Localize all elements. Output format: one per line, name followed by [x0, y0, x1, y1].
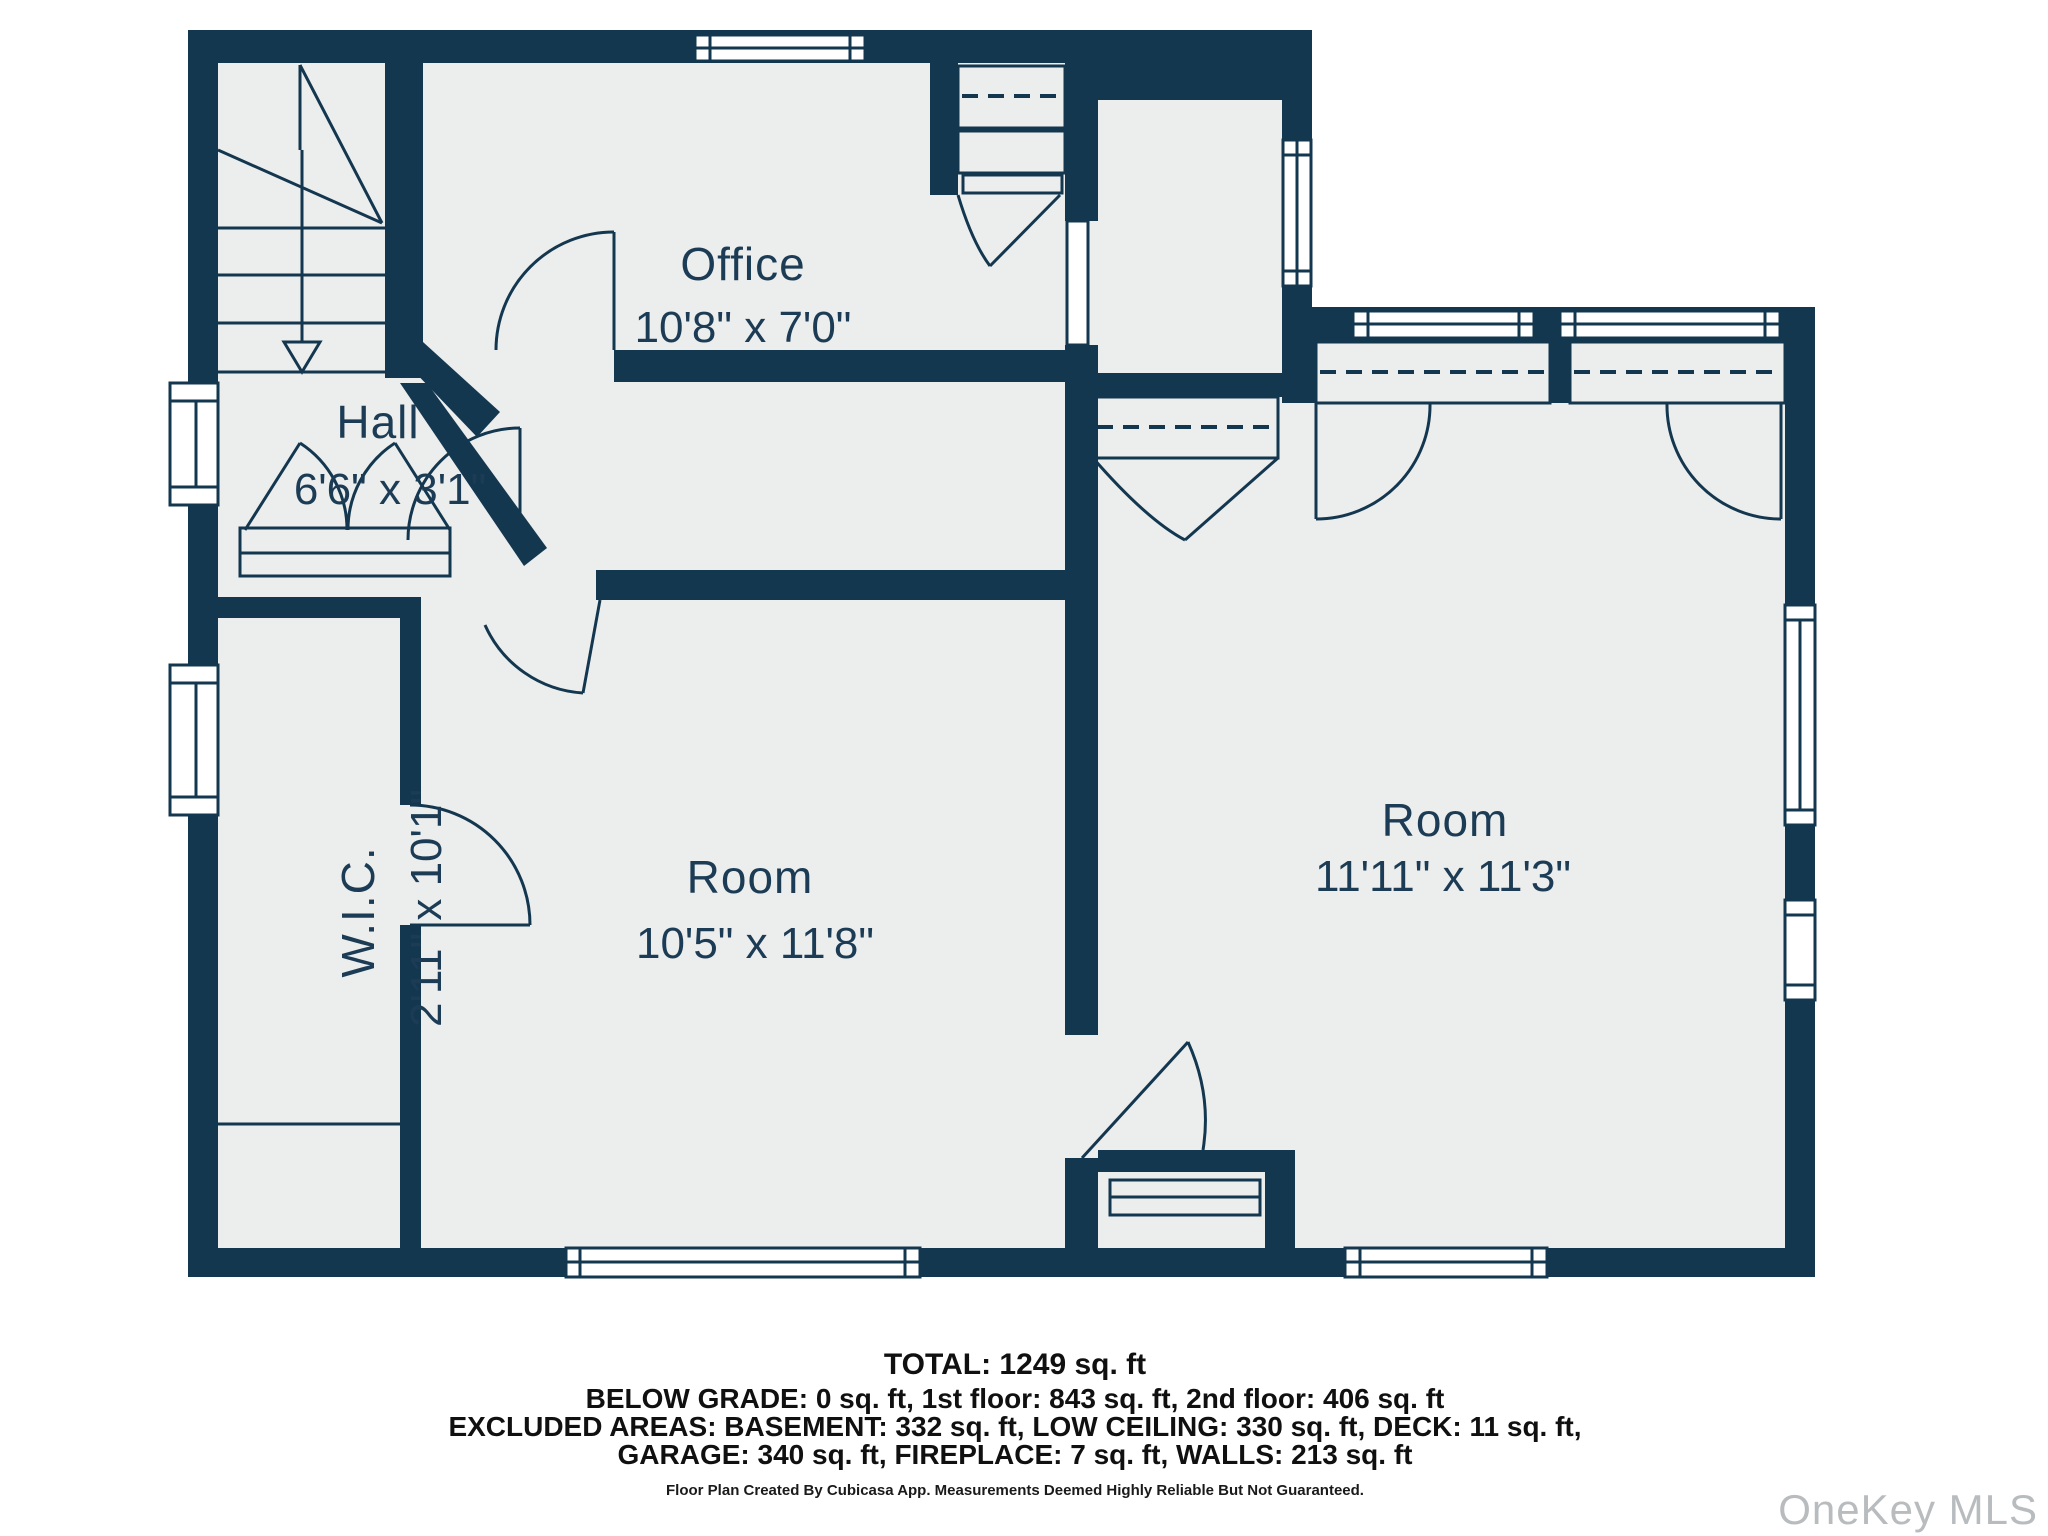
floor-area [218, 63, 1785, 1248]
room-left-label: Room [687, 850, 814, 904]
room-right-label: Room [1382, 793, 1509, 847]
office-dimensions: 10'8" x 7'0" [635, 303, 852, 353]
total-area-text: TOTAL: 1249 sq. ft [0, 1348, 2030, 1382]
disclaimer-text: Floor Plan Created By Cubicasa App. Meas… [0, 1482, 2030, 1499]
garage-fireplace-walls-text: GARAGE: 340 sq. ft, FIREPLACE: 7 sq. ft,… [0, 1439, 2030, 1471]
room-right-dimensions: 11'11" x 11'3" [1315, 852, 1571, 902]
floor-plan-drawing [0, 0, 2048, 1536]
hall-label: Hall [336, 395, 419, 449]
room-left-dimensions: 10'5" x 11'8" [636, 919, 874, 969]
hall-dimensions: 6'6" x 3'1" [294, 465, 486, 515]
floor-plan-page: Office 10'8" x 7'0" Hall 6'6" x 3'1" W.I… [0, 0, 2048, 1536]
onekey-mls-watermark: OneKey MLS [1778, 1486, 2038, 1534]
wic-dimensions: 2'11" x 10'1" [402, 789, 452, 1027]
wic-label: W.I.C. [331, 846, 385, 977]
office-label: Office [680, 237, 805, 291]
